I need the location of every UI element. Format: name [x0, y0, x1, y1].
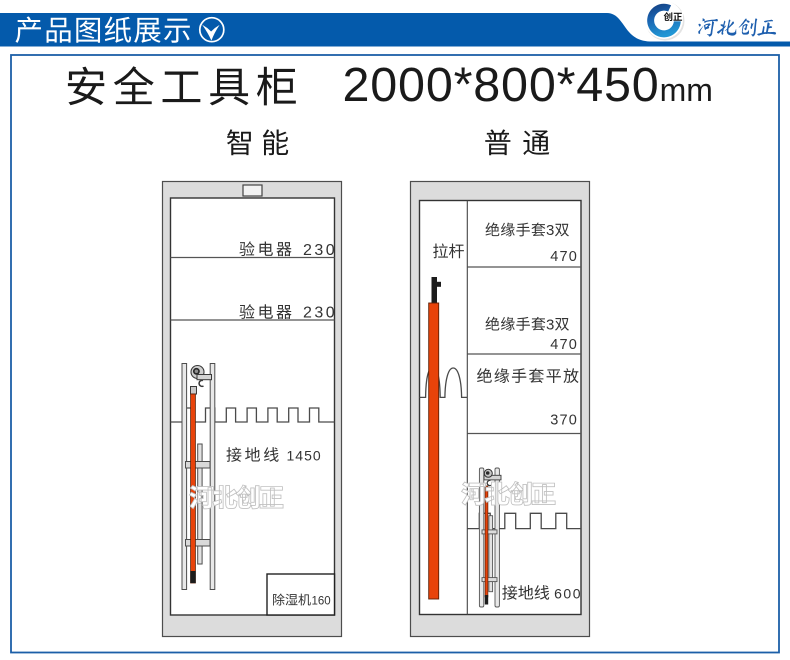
svg-text:160: 160: [312, 596, 331, 608]
svg-text:470: 470: [550, 337, 578, 353]
svg-text:370: 370: [550, 413, 578, 429]
svg-text:1450: 1450: [287, 448, 322, 464]
svg-text:230: 230: [303, 242, 337, 259]
svg-text:3: 3: [546, 317, 554, 334]
svg-text:3: 3: [546, 222, 554, 239]
svg-text:230: 230: [303, 305, 337, 322]
svg-text:2000*800*450mm: 2000*800*450mm: [343, 58, 713, 112]
svg-text:470: 470: [550, 249, 578, 265]
svg-text:600: 600: [554, 586, 582, 602]
